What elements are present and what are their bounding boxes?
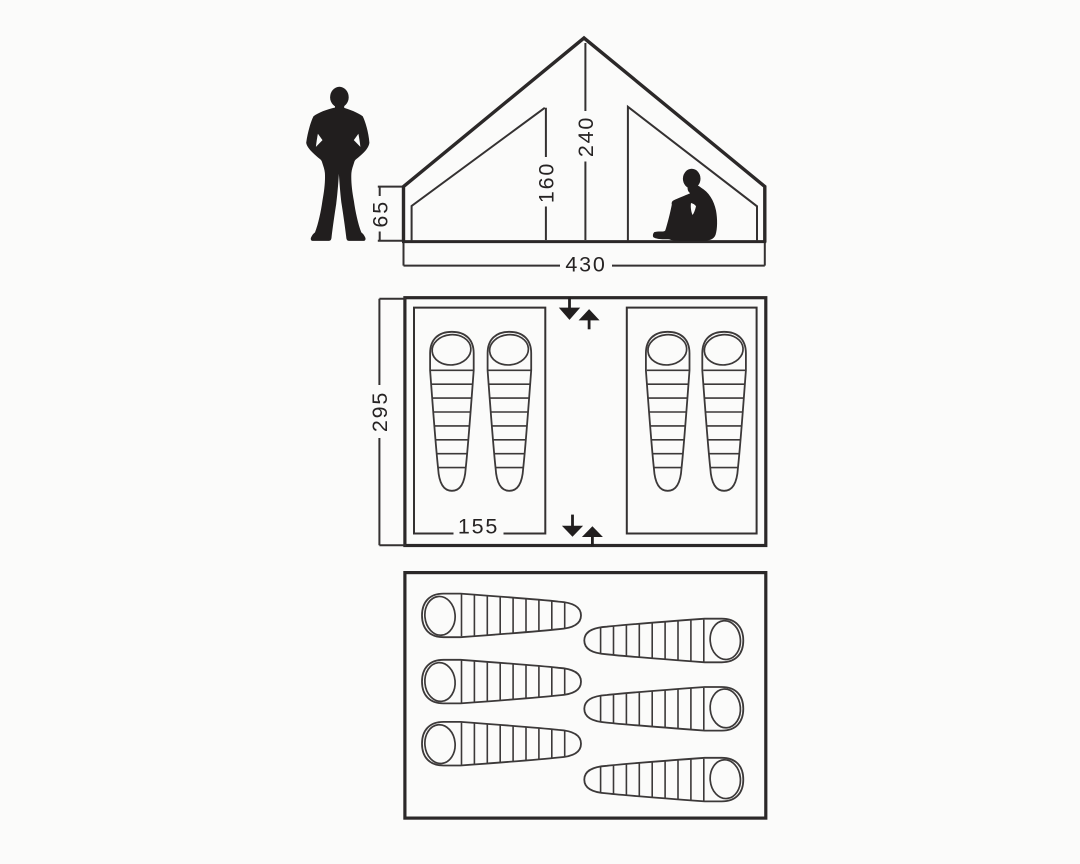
svg-text:65: 65 xyxy=(368,200,392,228)
svg-text:160: 160 xyxy=(534,162,558,203)
svg-text:295: 295 xyxy=(368,391,392,432)
svg-text:430: 430 xyxy=(565,253,606,277)
svg-text:240: 240 xyxy=(574,116,598,157)
svg-text:155: 155 xyxy=(458,515,499,539)
